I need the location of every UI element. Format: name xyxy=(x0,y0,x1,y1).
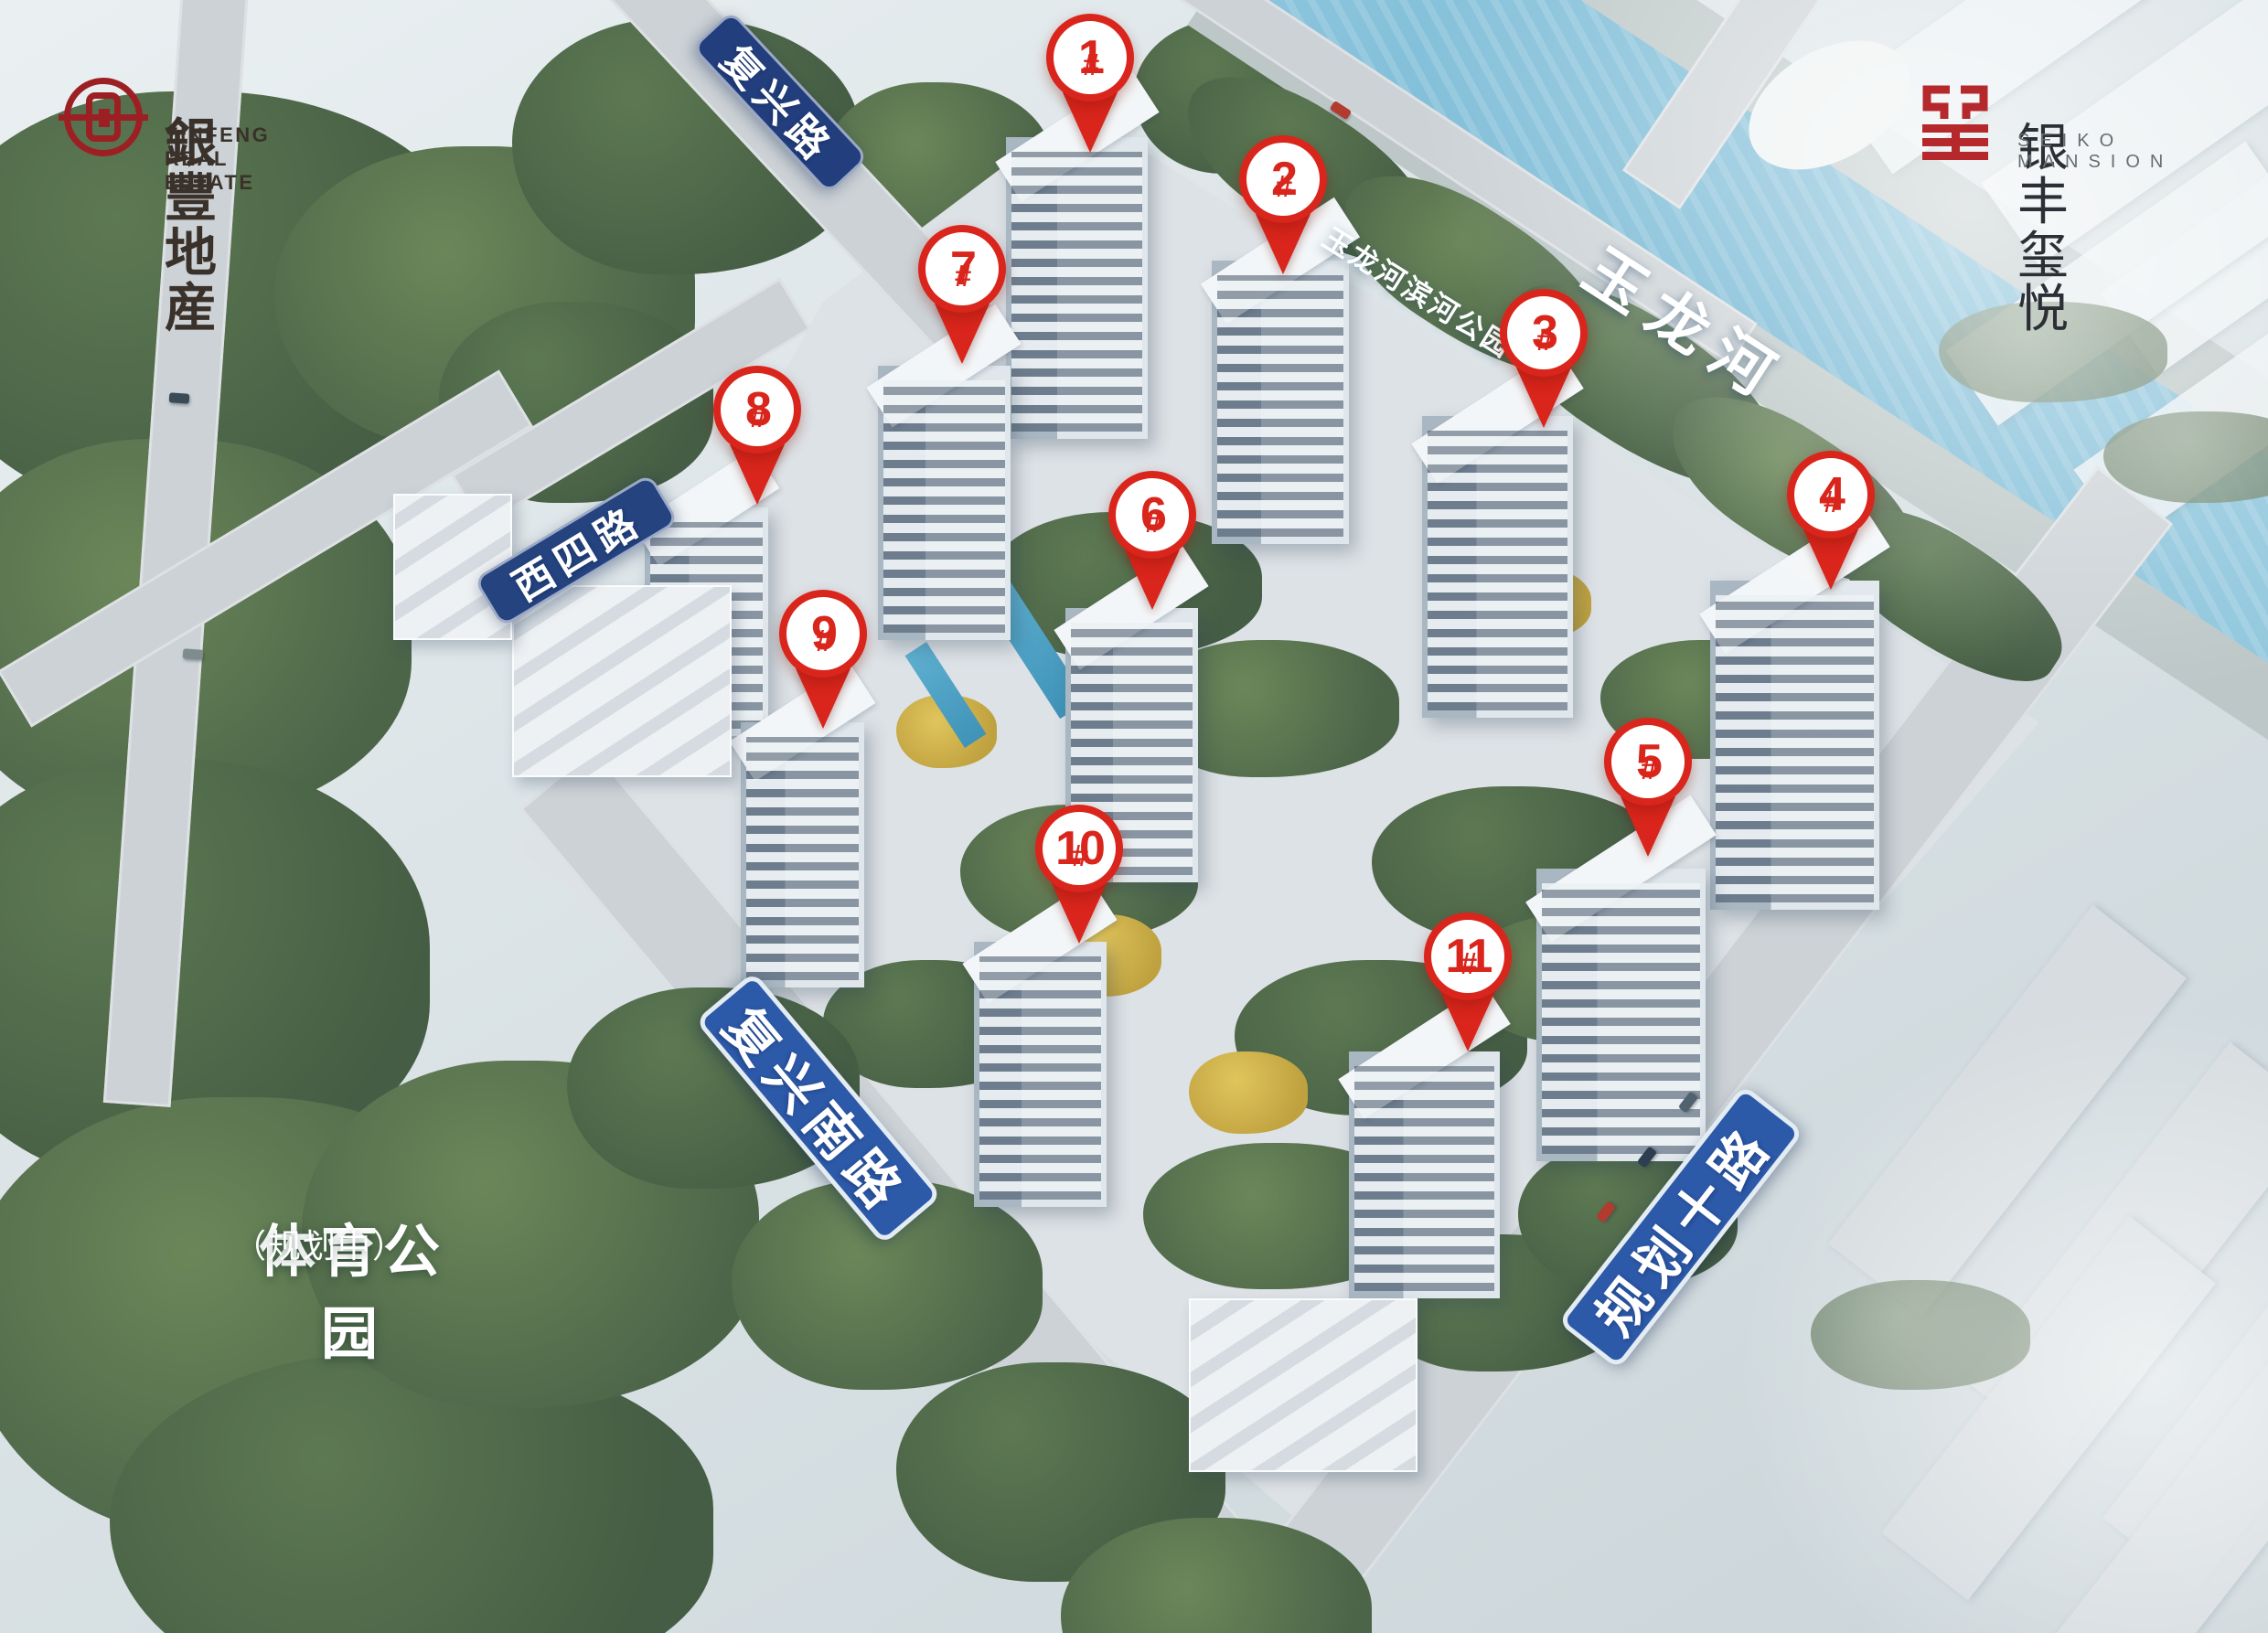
marker-circle: 6# xyxy=(1108,471,1196,559)
marker-circle: 11# xyxy=(1424,913,1512,1000)
building-marker-7[interactable]: 7# xyxy=(918,225,1006,364)
marker-circle: 2# xyxy=(1239,135,1327,223)
seiko-mansion-logo: 银丰玺悦 SEIKO MANSION xyxy=(1917,82,2017,163)
building-marker-2[interactable]: 2# xyxy=(1239,135,1327,274)
marker-hash: # xyxy=(1824,486,1840,517)
forest-blob xyxy=(110,1353,713,1633)
marker-hash: # xyxy=(955,261,971,291)
building-tower-10 xyxy=(974,942,1107,1207)
building-marker-6[interactable]: 6# xyxy=(1108,471,1196,610)
building-marker-3[interactable]: 3# xyxy=(1500,289,1588,428)
marker-circle: 10# xyxy=(1035,805,1123,892)
car xyxy=(169,392,190,404)
building-tower-1 xyxy=(1006,137,1148,439)
marker-circle: 9# xyxy=(779,590,867,678)
building-marker-10[interactable]: 10# xyxy=(1035,805,1123,944)
marker-hash: # xyxy=(750,401,766,432)
marker-hash: # xyxy=(1460,948,1477,978)
building-marker-11[interactable]: 11# xyxy=(1424,913,1512,1051)
marker-hash: # xyxy=(1145,507,1161,537)
marker-circle: 7# xyxy=(918,225,1006,313)
commercial-building xyxy=(1189,1298,1417,1472)
yellow-tree-cluster xyxy=(1189,1051,1308,1134)
yinfeng-seal-icon xyxy=(64,78,143,156)
seiko-mansion-en: SEIKO MANSION xyxy=(2017,131,2173,173)
building-tower-9 xyxy=(741,722,864,987)
sports-park-note: （规划中） xyxy=(233,1220,407,1267)
marker-hash: # xyxy=(1276,171,1292,201)
tree-cluster xyxy=(1811,1280,2030,1390)
building-tower-11 xyxy=(1349,1051,1500,1298)
building-marker-5[interactable]: 5# xyxy=(1604,718,1692,857)
marker-circle: 1# xyxy=(1046,14,1134,101)
marker-hash: # xyxy=(1536,325,1553,355)
marker-hash: # xyxy=(1083,49,1099,80)
marker-hash: # xyxy=(816,625,832,656)
marker-circle: 5# xyxy=(1604,718,1692,806)
building-marker-8[interactable]: 8# xyxy=(713,366,801,505)
yinfeng-logo: 銀豐地産 YINFENG REAL ESTATE xyxy=(64,78,165,156)
seal-glyph-inner xyxy=(99,109,110,127)
masterplan-rendering: 复兴路 西四路 复兴南路 规划十路 玉龙河 玉龙河滨河公园 体育公园 （规划中）… xyxy=(0,0,2268,1633)
building-tower-3 xyxy=(1422,416,1573,718)
building-marker-1[interactable]: 1# xyxy=(1046,14,1134,153)
amenity-building xyxy=(512,585,732,777)
building-tower-4 xyxy=(1710,581,1879,910)
marker-circle: 4# xyxy=(1787,451,1875,539)
marker-circle: 3# xyxy=(1500,289,1588,377)
building-marker-4[interactable]: 4# xyxy=(1787,451,1875,590)
marker-hash: # xyxy=(1072,840,1088,870)
seiko-mansion-mark-icon xyxy=(1917,82,1994,163)
building-tower-7 xyxy=(878,366,1011,640)
building-tower-2 xyxy=(1212,261,1349,544)
building-marker-9[interactable]: 9# xyxy=(779,590,867,729)
marker-circle: 8# xyxy=(713,366,801,454)
yinfeng-logo-en: YINFENG REAL ESTATE xyxy=(165,123,270,195)
building-tower-5 xyxy=(1536,869,1706,1161)
car xyxy=(183,648,204,660)
marker-hash: # xyxy=(1641,753,1657,784)
